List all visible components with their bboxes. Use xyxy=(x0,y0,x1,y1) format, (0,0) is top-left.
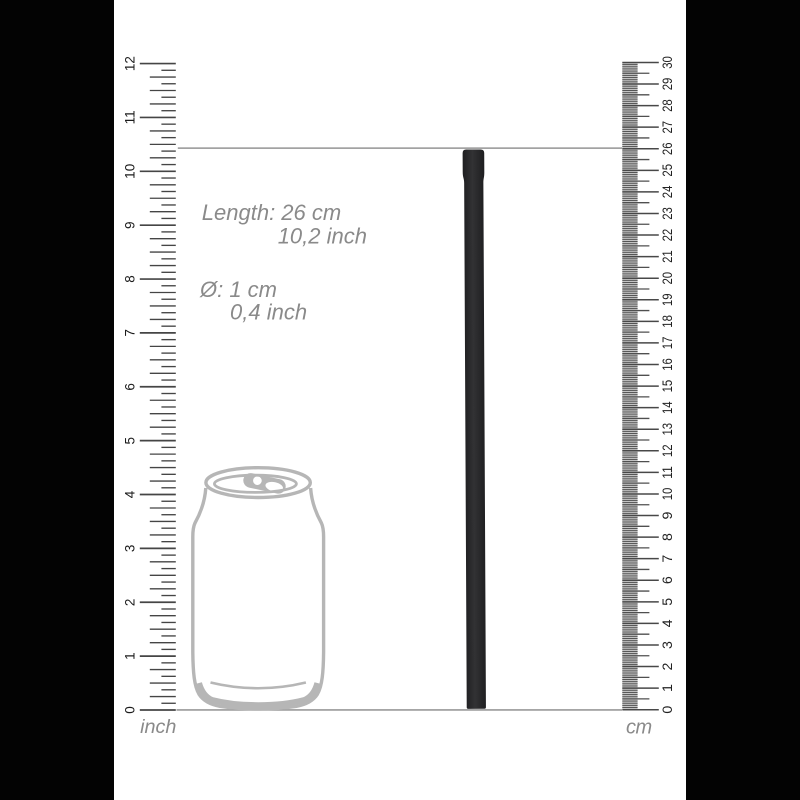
svg-text:3: 3 xyxy=(660,641,676,649)
svg-text:5: 5 xyxy=(660,598,676,606)
svg-text:19: 19 xyxy=(660,293,676,306)
svg-text:Length: 26 cm: Length: 26 cm xyxy=(202,200,341,225)
svg-text:22: 22 xyxy=(660,229,676,242)
svg-text:2: 2 xyxy=(660,663,676,671)
svg-text:7: 7 xyxy=(660,555,676,563)
svg-text:13: 13 xyxy=(660,423,676,436)
svg-text:3: 3 xyxy=(123,545,138,553)
svg-text:0: 0 xyxy=(123,706,138,714)
svg-text:6: 6 xyxy=(660,576,676,584)
svg-text:2: 2 xyxy=(123,599,138,607)
svg-text:10: 10 xyxy=(123,164,138,179)
svg-text:23: 23 xyxy=(660,207,676,220)
svg-text:25: 25 xyxy=(660,164,676,177)
svg-text:29: 29 xyxy=(660,78,676,91)
svg-text:1: 1 xyxy=(123,652,138,660)
svg-text:1: 1 xyxy=(660,684,676,692)
svg-text:24: 24 xyxy=(660,186,676,199)
svg-text:11: 11 xyxy=(123,110,138,124)
svg-text:11: 11 xyxy=(660,466,676,479)
svg-text:15: 15 xyxy=(660,380,676,393)
svg-text:26: 26 xyxy=(660,142,676,155)
svg-text:Ø: 1 cm: Ø: 1 cm xyxy=(199,277,277,302)
svg-text:5: 5 xyxy=(123,437,138,445)
svg-text:27: 27 xyxy=(660,121,676,134)
svg-text:8: 8 xyxy=(123,275,138,283)
svg-text:14: 14 xyxy=(660,401,676,414)
svg-text:8: 8 xyxy=(660,533,676,541)
svg-text:7: 7 xyxy=(123,329,138,337)
svg-text:21: 21 xyxy=(660,250,676,263)
svg-text:30: 30 xyxy=(660,56,676,69)
svg-text:6: 6 xyxy=(123,383,138,391)
svg-text:inch: inch xyxy=(140,716,176,738)
svg-text:20: 20 xyxy=(660,272,676,285)
svg-text:4: 4 xyxy=(660,619,676,627)
svg-text:10,2 inch: 10,2 inch xyxy=(278,224,367,249)
svg-text:12: 12 xyxy=(123,56,138,71)
svg-text:9: 9 xyxy=(123,221,138,229)
svg-text:4: 4 xyxy=(123,490,138,498)
svg-text:cm: cm xyxy=(626,717,652,739)
svg-text:0,4 inch: 0,4 inch xyxy=(230,299,307,324)
svg-text:16: 16 xyxy=(660,358,676,371)
svg-text:10: 10 xyxy=(660,488,676,501)
svg-text:12: 12 xyxy=(660,444,676,457)
svg-text:18: 18 xyxy=(660,315,676,328)
svg-text:17: 17 xyxy=(660,337,676,350)
svg-text:28: 28 xyxy=(660,99,676,112)
svg-text:0: 0 xyxy=(660,706,676,714)
svg-text:9: 9 xyxy=(660,511,676,519)
